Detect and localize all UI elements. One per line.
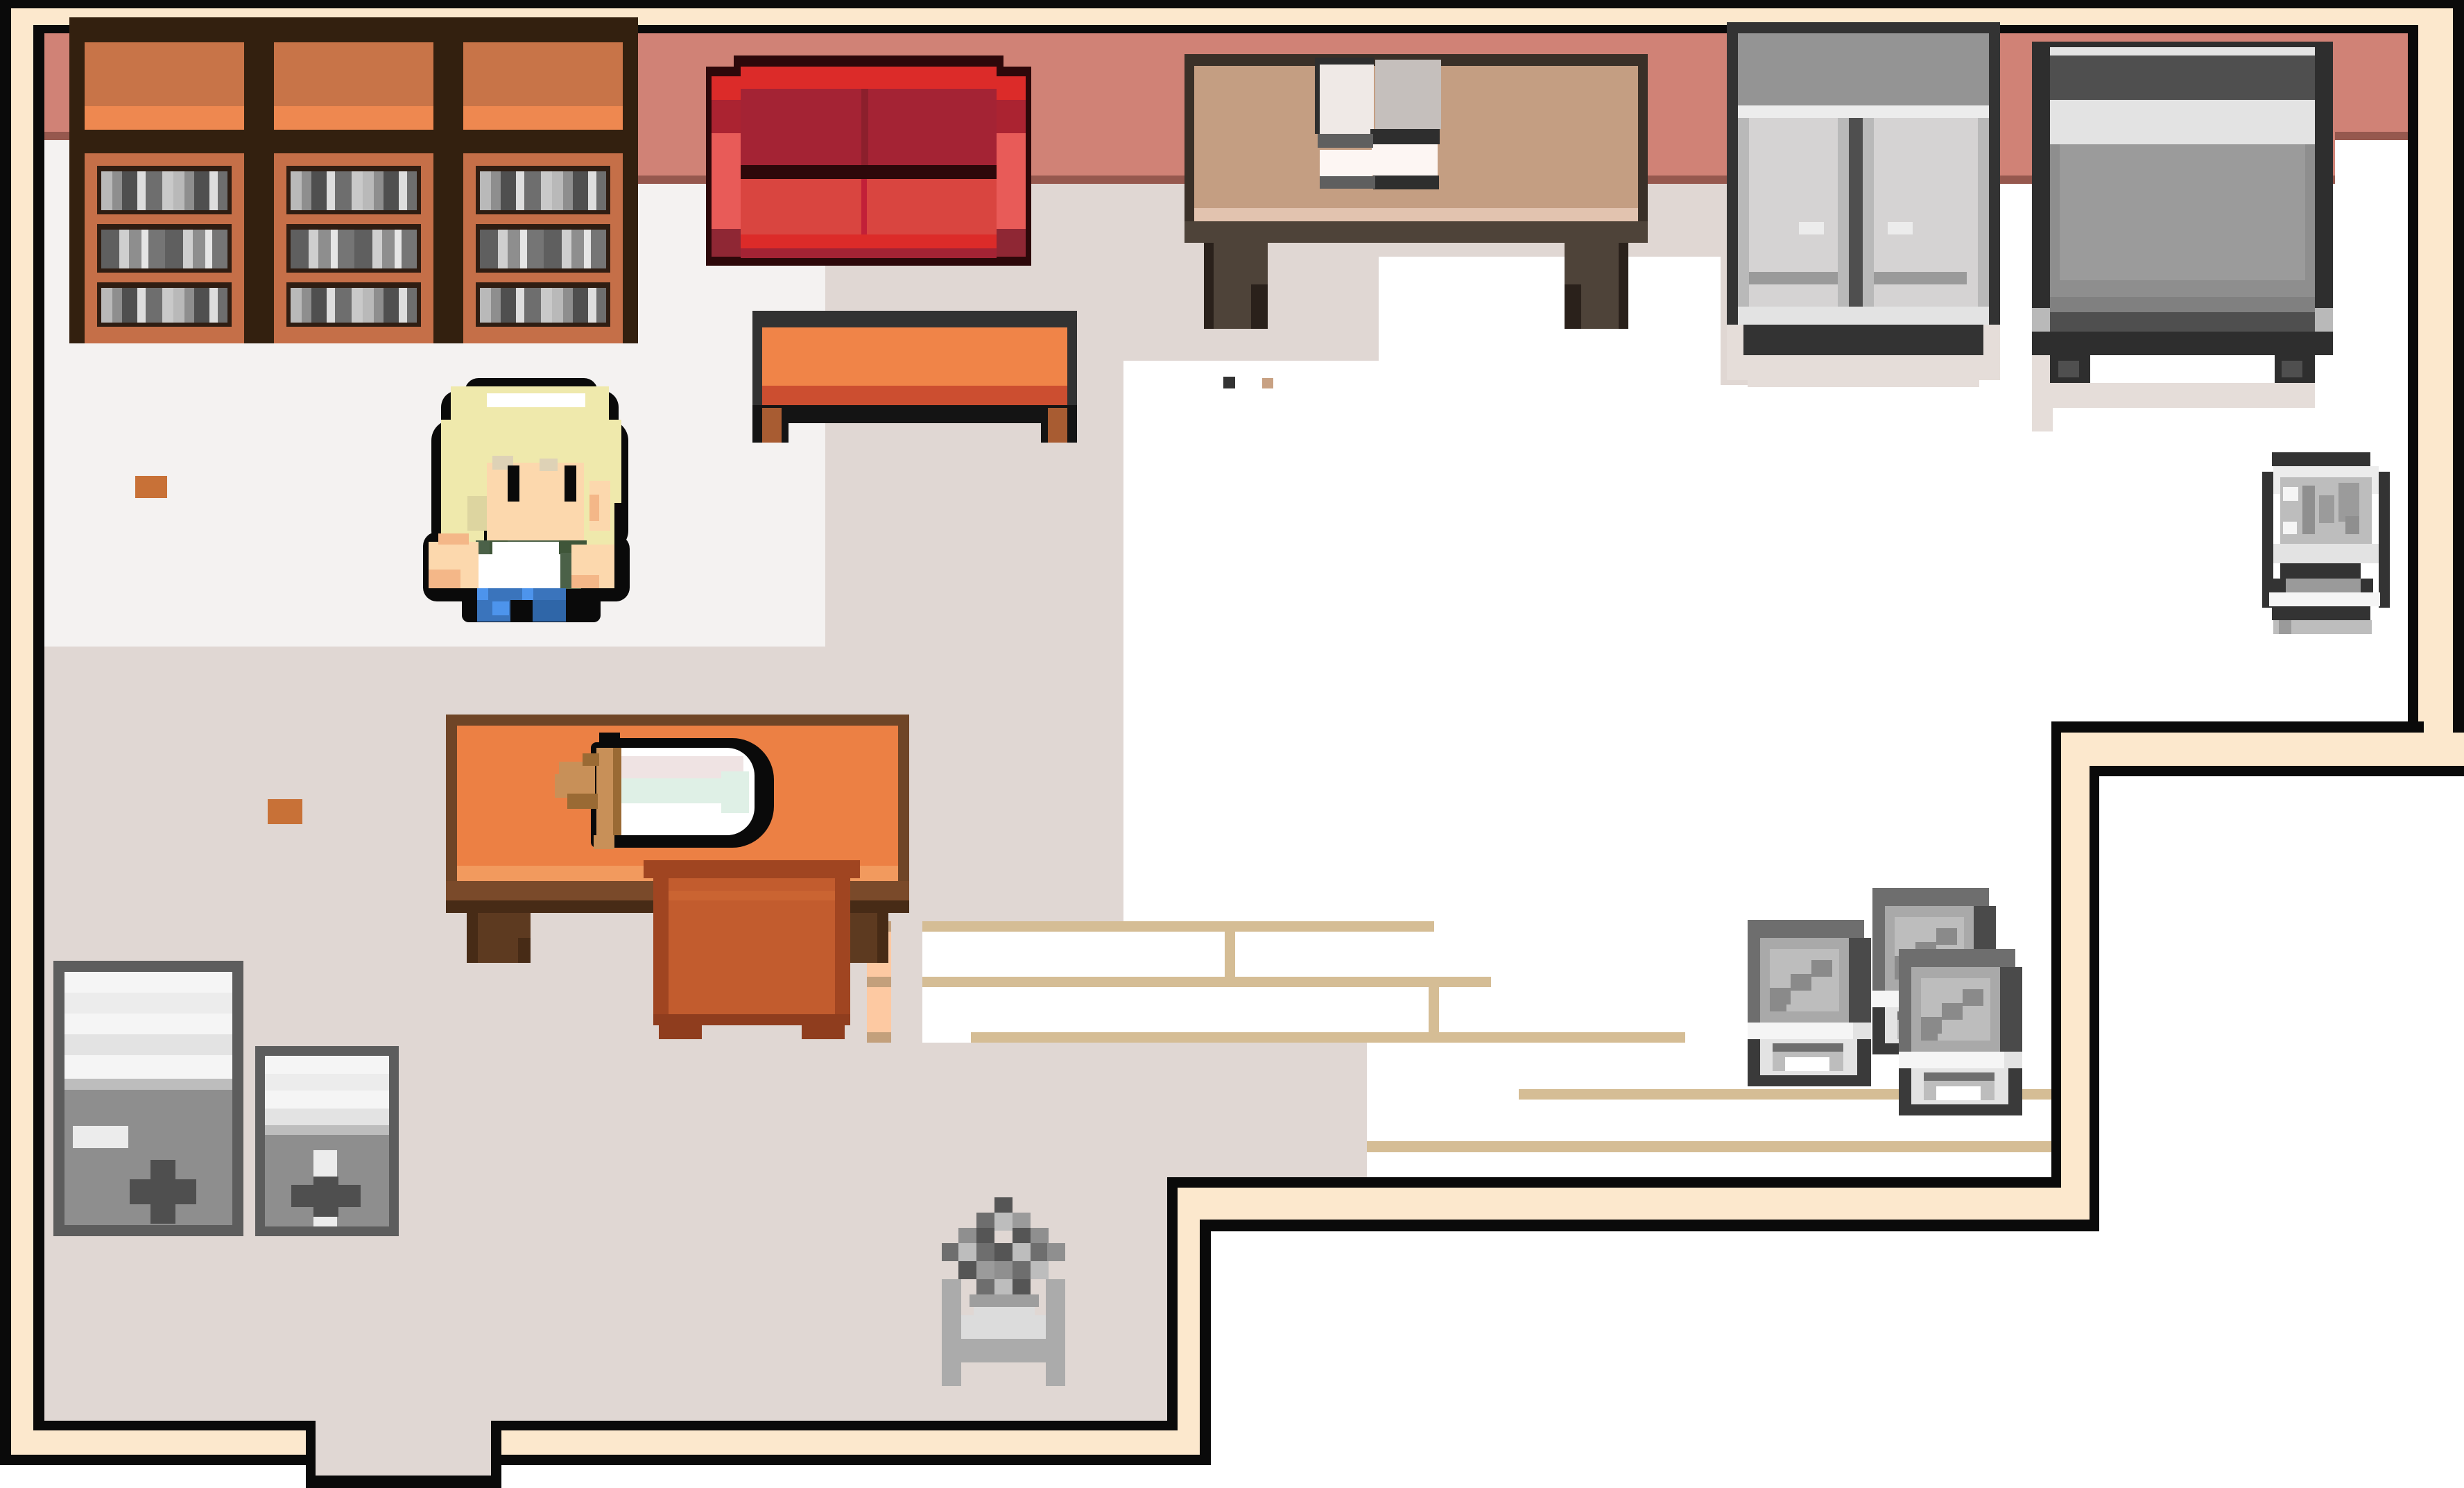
player-character-part xyxy=(540,459,558,471)
chair-by-wall-part xyxy=(2273,579,2286,592)
wardrobe-part xyxy=(1727,33,1738,325)
bookshelf-part xyxy=(259,42,274,343)
side-table-part xyxy=(1194,208,1638,221)
washing-machine-large-part xyxy=(64,1079,232,1090)
potted-plant-stand-part xyxy=(958,1243,976,1261)
player-character-part xyxy=(565,465,576,502)
stove-cabinet-part xyxy=(2282,361,2302,377)
player-character-part xyxy=(508,465,519,502)
desk-part xyxy=(518,938,531,963)
chair-by-wall-part xyxy=(2272,606,2370,620)
washing-machine-small-part xyxy=(265,1226,389,1236)
room-border-part xyxy=(33,1421,306,1430)
crate-part xyxy=(1942,1003,1963,1020)
sword-on-desk[interactable] xyxy=(555,733,777,857)
crate-part xyxy=(2000,967,2022,1052)
bookshelf-part xyxy=(244,42,259,343)
washing-machine-small-part xyxy=(265,1074,389,1091)
wardrobe-part xyxy=(1874,272,1967,284)
bookshelf-1[interactable] xyxy=(69,17,259,343)
bookshelf-part xyxy=(291,288,417,323)
stove-cabinet-part xyxy=(2050,383,2315,408)
chair-by-wall-part xyxy=(2302,486,2315,534)
side-table-part xyxy=(1251,284,1268,329)
chair-by-wall-part xyxy=(2269,592,2380,606)
bookshelf-part xyxy=(85,106,244,130)
sofa[interactable] xyxy=(706,55,1031,266)
stove-cabinet-part xyxy=(2032,332,2333,355)
potted-plant-stand-part xyxy=(1013,1261,1031,1279)
wardrobe-part xyxy=(1978,118,1989,307)
bookshelf-part xyxy=(274,106,433,130)
crate-part xyxy=(1811,960,1832,977)
washing-machine-small-part xyxy=(255,1046,399,1056)
crate-part xyxy=(1921,1034,1938,1041)
crate-part xyxy=(1770,1004,1786,1011)
room-border-part xyxy=(2061,766,2090,1188)
bookshelf-part xyxy=(85,42,244,106)
sofa-part xyxy=(997,229,1026,257)
wardrobe-part xyxy=(1888,222,1913,234)
sword-on-desk-part xyxy=(567,794,598,809)
washing-machine-small-part xyxy=(265,1056,389,1074)
bench-part xyxy=(752,311,762,408)
side-table-part xyxy=(1638,54,1648,221)
potted-plant-stand-part xyxy=(994,1261,1013,1279)
sofa-part xyxy=(741,234,997,248)
sofa-part xyxy=(741,179,997,234)
crate-part xyxy=(1770,988,1791,1004)
bookshelf-part xyxy=(101,230,227,268)
wardrobe-part xyxy=(1738,118,1749,307)
chair-by-wall-part xyxy=(2283,522,2297,534)
side-table-part xyxy=(1619,243,1628,329)
room-border-part xyxy=(2418,8,2453,733)
washing-machine-large-part xyxy=(64,1034,232,1055)
potted-plant-stand-part xyxy=(1031,1243,1049,1261)
side-table-part xyxy=(1320,176,1375,189)
potted-plant-stand-part xyxy=(970,1294,1039,1307)
desk-chair[interactable] xyxy=(644,860,860,1039)
potted-plant-stand-part xyxy=(942,1243,960,1261)
player-character-part xyxy=(477,588,566,600)
side-table-part xyxy=(1372,144,1438,176)
side-table-part xyxy=(1318,134,1373,148)
bench-part xyxy=(1048,408,1067,443)
desk-part xyxy=(898,715,909,881)
bench-part xyxy=(762,327,1067,386)
chair-by-wall-part xyxy=(2283,487,2298,501)
room-border-part xyxy=(2090,776,2099,1221)
bench-part xyxy=(1067,311,1077,408)
chair-by-wall-part xyxy=(2273,544,2379,563)
stove-cabinet-part xyxy=(2050,297,2315,312)
room-border-part xyxy=(2408,25,2418,733)
room-border-part xyxy=(2090,766,2464,776)
room-border-part xyxy=(2051,733,2061,1178)
wardrobe-part xyxy=(1749,272,1838,284)
bench[interactable] xyxy=(752,311,1077,443)
player-character-part xyxy=(438,533,469,545)
wardrobe-part xyxy=(1748,355,1979,387)
wardrobe-part xyxy=(1849,118,1863,307)
washing-machine-large-part xyxy=(73,1126,128,1148)
potted-plant-stand-part xyxy=(994,1243,1013,1261)
room-border-part xyxy=(1178,1188,2090,1220)
crate-part xyxy=(1748,920,1864,938)
crate-part xyxy=(1872,888,1989,906)
desk-part xyxy=(446,715,909,726)
bookshelf-part xyxy=(291,230,417,268)
chair-by-wall-part xyxy=(2272,452,2370,466)
potted-plant-stand-part xyxy=(1013,1243,1031,1261)
potted-plant-stand-part xyxy=(958,1261,976,1279)
sofa-part xyxy=(997,76,1026,100)
crate-part xyxy=(1921,1017,1942,1034)
crate-part xyxy=(1899,1052,2004,1068)
side-table-part xyxy=(1184,54,1194,221)
chair-by-wall[interactable] xyxy=(2262,452,2390,634)
player-character-part xyxy=(477,588,488,600)
potted-plant-stand-part xyxy=(942,1279,961,1386)
room-border-part xyxy=(501,1455,1211,1465)
crate-3[interactable] xyxy=(1899,949,2022,1115)
wardrobe-part xyxy=(1727,22,2000,33)
bookshelf-part xyxy=(463,130,623,153)
side-table-part xyxy=(1184,221,1648,243)
bookshelf-part xyxy=(274,42,433,106)
sword-on-desk-part xyxy=(613,748,621,835)
desk-chair-part xyxy=(835,878,850,1014)
player-character-part xyxy=(589,495,599,521)
washing-machine-small-part xyxy=(265,1125,389,1135)
room-border-part xyxy=(11,1430,306,1455)
crate-part xyxy=(1936,928,1957,945)
crate-part xyxy=(1963,989,1983,1006)
side-table-part xyxy=(1565,284,1581,329)
player-character-part xyxy=(492,601,509,615)
potted-plant-stand[interactable] xyxy=(942,1197,1065,1386)
washing-machine-small-part xyxy=(389,1046,399,1236)
stove-cabinet-part xyxy=(2032,54,2050,332)
sword-on-desk-part xyxy=(583,753,599,766)
chair-by-wall-part xyxy=(2280,563,2361,579)
side-table-part xyxy=(1373,176,1439,189)
bench-part xyxy=(762,386,1067,405)
crate-part xyxy=(1936,1086,1981,1100)
stove-cabinet-part xyxy=(2050,47,2315,55)
crate-part xyxy=(1773,1043,1843,1052)
stove-cabinet-part xyxy=(2032,308,2050,332)
bookshelf-part xyxy=(433,42,449,343)
room-border-part xyxy=(2453,0,2464,733)
side-table-part xyxy=(1370,129,1440,144)
bookshelf-part xyxy=(623,42,638,343)
washing-machine-large-part xyxy=(53,961,243,972)
bookshelf-part xyxy=(480,288,606,323)
player-character-part xyxy=(429,570,460,588)
side-table[interactable] xyxy=(1184,54,1648,333)
wardrobe-part xyxy=(1743,325,1983,355)
bookshelf-part xyxy=(291,171,417,210)
room-border-part xyxy=(1200,1231,1211,1465)
desk-chair-part xyxy=(659,1025,702,1039)
stove-cabinet[interactable] xyxy=(2032,42,2333,431)
wardrobe-part xyxy=(1838,118,1849,307)
potted-plant-stand-part xyxy=(1031,1261,1049,1279)
chair-by-wall-part xyxy=(2379,472,2390,608)
room-border-part xyxy=(306,1476,501,1488)
sofa-part xyxy=(861,89,868,165)
bookshelf-part xyxy=(480,230,606,268)
bookshelf-part xyxy=(101,288,227,323)
wardrobe-part xyxy=(1863,118,1874,307)
crate-part xyxy=(1899,949,2015,967)
crate-part xyxy=(1899,967,1911,1052)
washing-machine-large[interactable] xyxy=(53,961,243,1236)
crate-part xyxy=(1791,974,1811,991)
wardrobe[interactable] xyxy=(1727,22,2000,390)
desk-part xyxy=(467,913,478,963)
sword-on-desk-part xyxy=(594,835,614,849)
room-border-part xyxy=(501,1421,1178,1430)
crate-2[interactable] xyxy=(1748,920,1871,1086)
room-border-part xyxy=(1167,1188,1178,1421)
side-table-part xyxy=(1375,60,1441,129)
player-character[interactable] xyxy=(423,378,631,622)
crate-part xyxy=(1748,1023,1853,1039)
crate-part xyxy=(1872,906,1885,991)
bookshelf-part xyxy=(101,171,227,210)
potted-plant-stand-part xyxy=(961,1339,1046,1362)
washing-machine-large-part xyxy=(64,1014,232,1034)
chair-by-wall-part xyxy=(2361,579,2373,592)
sofa-part xyxy=(712,133,741,229)
bookshelf-part xyxy=(259,17,449,42)
stove-cabinet-part xyxy=(2315,308,2333,332)
desk-chair-part xyxy=(644,860,860,878)
bookshelf-2[interactable] xyxy=(259,17,449,343)
bookshelf-part xyxy=(69,17,259,42)
room-border-part xyxy=(0,1455,306,1465)
sofa-part xyxy=(997,100,1026,133)
chair-by-wall-part xyxy=(2319,495,2334,523)
sofa-part xyxy=(861,179,867,234)
potted-plant-stand-part xyxy=(994,1213,1013,1231)
sofa-part xyxy=(712,229,741,257)
stove-cabinet-part xyxy=(2050,100,2315,144)
crate-part xyxy=(1853,1023,1871,1039)
bookshelf-part xyxy=(448,42,463,343)
player-character-part xyxy=(571,575,599,588)
crate-part xyxy=(1924,1072,1995,1081)
side-table-part xyxy=(1320,65,1374,134)
crate-part xyxy=(1748,938,1760,1023)
washing-machine-large-part xyxy=(64,972,232,993)
player-character-part xyxy=(533,600,566,622)
washing-machine-small-part xyxy=(265,1109,389,1125)
stove-cabinet-part xyxy=(2050,55,2315,100)
potted-plant-stand-part xyxy=(1047,1243,1065,1261)
stove-cabinet-part xyxy=(2060,144,2305,280)
washing-machine-large-part xyxy=(53,961,64,1236)
bookshelf-part xyxy=(69,42,85,343)
washing-machine-small-part xyxy=(313,1177,338,1217)
room-border-part xyxy=(1200,1220,2099,1231)
desk-chair-part xyxy=(653,878,669,1014)
desk-part xyxy=(446,715,457,881)
crate-part xyxy=(1785,1057,1829,1071)
bookshelf-part xyxy=(480,171,606,210)
wardrobe-part xyxy=(1738,33,1989,105)
side-table-part xyxy=(1204,243,1214,329)
washing-machine-small[interactable] xyxy=(255,1046,399,1236)
stove-cabinet-part xyxy=(2050,312,2315,332)
bookshelf-3[interactable] xyxy=(448,17,638,343)
bookshelf-part xyxy=(274,130,433,153)
room-border-part xyxy=(1178,1220,1200,1455)
bookshelf-part xyxy=(463,42,623,106)
desk-part xyxy=(877,913,888,963)
sword-on-desk-part xyxy=(721,771,749,813)
bench-part xyxy=(762,408,782,443)
room-border-part xyxy=(2061,733,2464,766)
washing-machine-small-part xyxy=(265,1091,389,1109)
bookshelf-part xyxy=(463,106,623,130)
washing-machine-small-part xyxy=(255,1046,265,1236)
room-border-part xyxy=(1167,1177,2061,1188)
wardrobe-part xyxy=(1989,33,2000,325)
washing-machine-large-part xyxy=(64,1055,232,1079)
washing-machine-large-part xyxy=(64,1090,232,1225)
bookshelf-part xyxy=(448,17,638,42)
potted-plant-stand-part xyxy=(1046,1279,1065,1386)
wardrobe-part xyxy=(1738,105,1989,118)
game-viewport xyxy=(0,0,2464,1488)
side-table-part xyxy=(1320,150,1372,176)
sofa-part xyxy=(712,100,741,133)
washing-machine-large-part xyxy=(64,993,232,1014)
crate-part xyxy=(1849,938,1871,1023)
sofa-part xyxy=(741,67,997,89)
player-character-part xyxy=(492,542,559,556)
chair-by-wall-part xyxy=(2262,472,2273,608)
crate-part xyxy=(2004,1052,2022,1068)
sofa-part xyxy=(741,248,997,258)
room-border-part xyxy=(0,0,11,1465)
sofa-part xyxy=(712,76,741,100)
room-border-part xyxy=(0,0,2464,8)
wardrobe-part xyxy=(1738,307,1989,325)
sofa-part xyxy=(741,89,997,165)
wardrobe-part xyxy=(1799,222,1824,234)
room-border-part xyxy=(2051,721,2424,733)
bench-part xyxy=(752,311,1077,327)
room-border-part xyxy=(33,25,44,1430)
potted-plant-stand-part xyxy=(976,1243,994,1261)
chair-by-wall-part xyxy=(2286,579,2361,592)
potted-plant-stand-part xyxy=(961,1315,1046,1339)
washing-machine-large-part xyxy=(64,1225,232,1236)
room-border-part xyxy=(501,1430,1200,1455)
desk-chair-part xyxy=(653,1014,850,1025)
desk-chair-part xyxy=(669,891,835,900)
player-character-part xyxy=(522,588,533,600)
washing-machine-large-part xyxy=(232,961,243,1236)
potted-plant-stand-part xyxy=(976,1261,994,1279)
stove-cabinet-part xyxy=(2058,361,2079,377)
stove-cabinet-part xyxy=(2315,54,2333,332)
chair-by-wall-part xyxy=(2279,620,2291,634)
bookshelf-part xyxy=(85,130,244,153)
player-character-part xyxy=(487,393,585,407)
chair-by-wall-part xyxy=(2345,516,2359,534)
washing-machine-large-part xyxy=(150,1160,175,1224)
bench-part xyxy=(752,405,1077,423)
sofa-part xyxy=(997,133,1026,229)
room-border-part xyxy=(11,8,33,1455)
desk-chair-part xyxy=(802,1025,845,1039)
